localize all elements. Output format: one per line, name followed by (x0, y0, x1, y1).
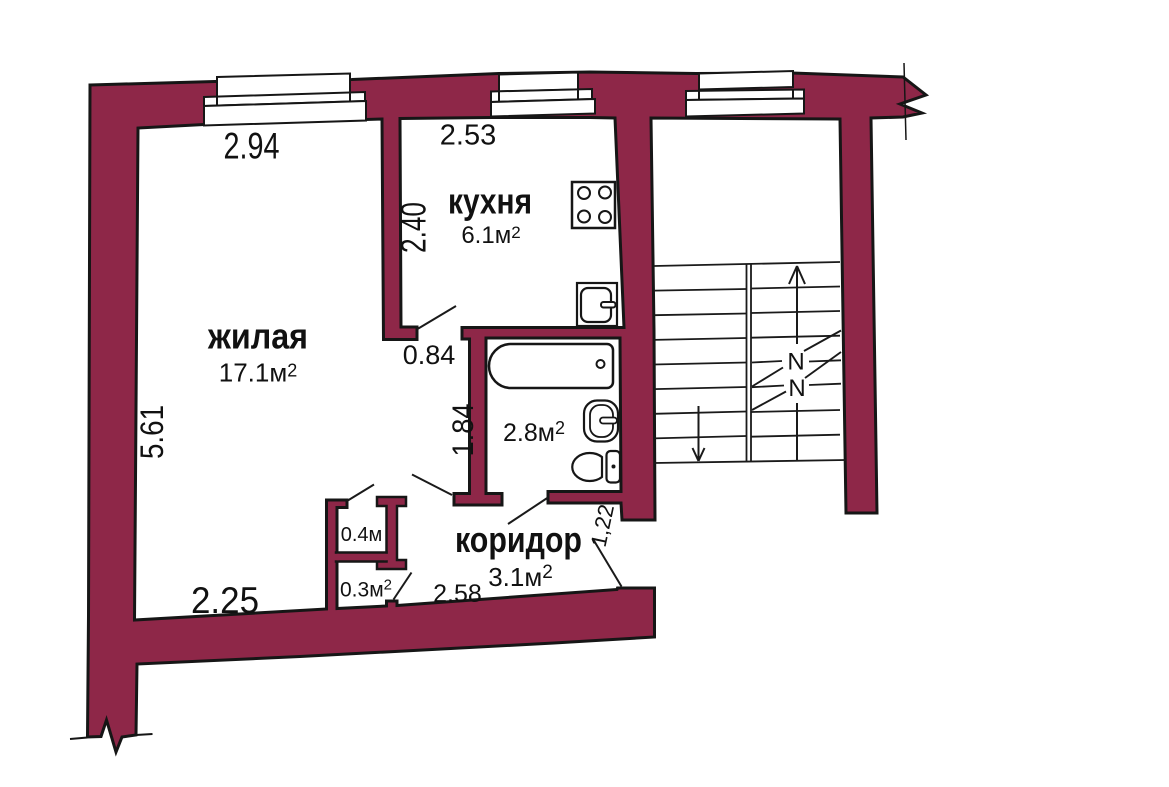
svg-text:2.94: 2.94 (224, 126, 280, 167)
svg-text:коридор: коридор (455, 519, 582, 560)
svg-text:N: N (788, 375, 805, 402)
svg-text:6.1м2: 6.1м2 (461, 222, 520, 249)
svg-text:0.3м2: 0.3м2 (340, 577, 392, 602)
svg-text:2.8м2: 2.8м2 (503, 418, 565, 447)
svg-text:0.84: 0.84 (403, 340, 456, 370)
svg-text:3.1м2: 3.1м2 (488, 562, 553, 592)
svg-text:17.1м2: 17.1м2 (219, 358, 298, 388)
svg-text:кухня: кухня (448, 181, 532, 222)
svg-text:2.58: 2.58 (433, 580, 482, 608)
svg-text:жилая: жилая (207, 316, 308, 357)
svg-text:5.61: 5.61 (134, 405, 170, 459)
svg-text:N: N (787, 349, 804, 376)
svg-text:2.53: 2.53 (440, 120, 496, 152)
svg-text:1,22: 1,22 (586, 502, 619, 549)
svg-text:1.84: 1.84 (447, 404, 480, 457)
svg-text:2.40: 2.40 (394, 202, 433, 253)
svg-text:2.25: 2.25 (191, 580, 259, 621)
svg-text:0.4м: 0.4м (341, 524, 383, 546)
